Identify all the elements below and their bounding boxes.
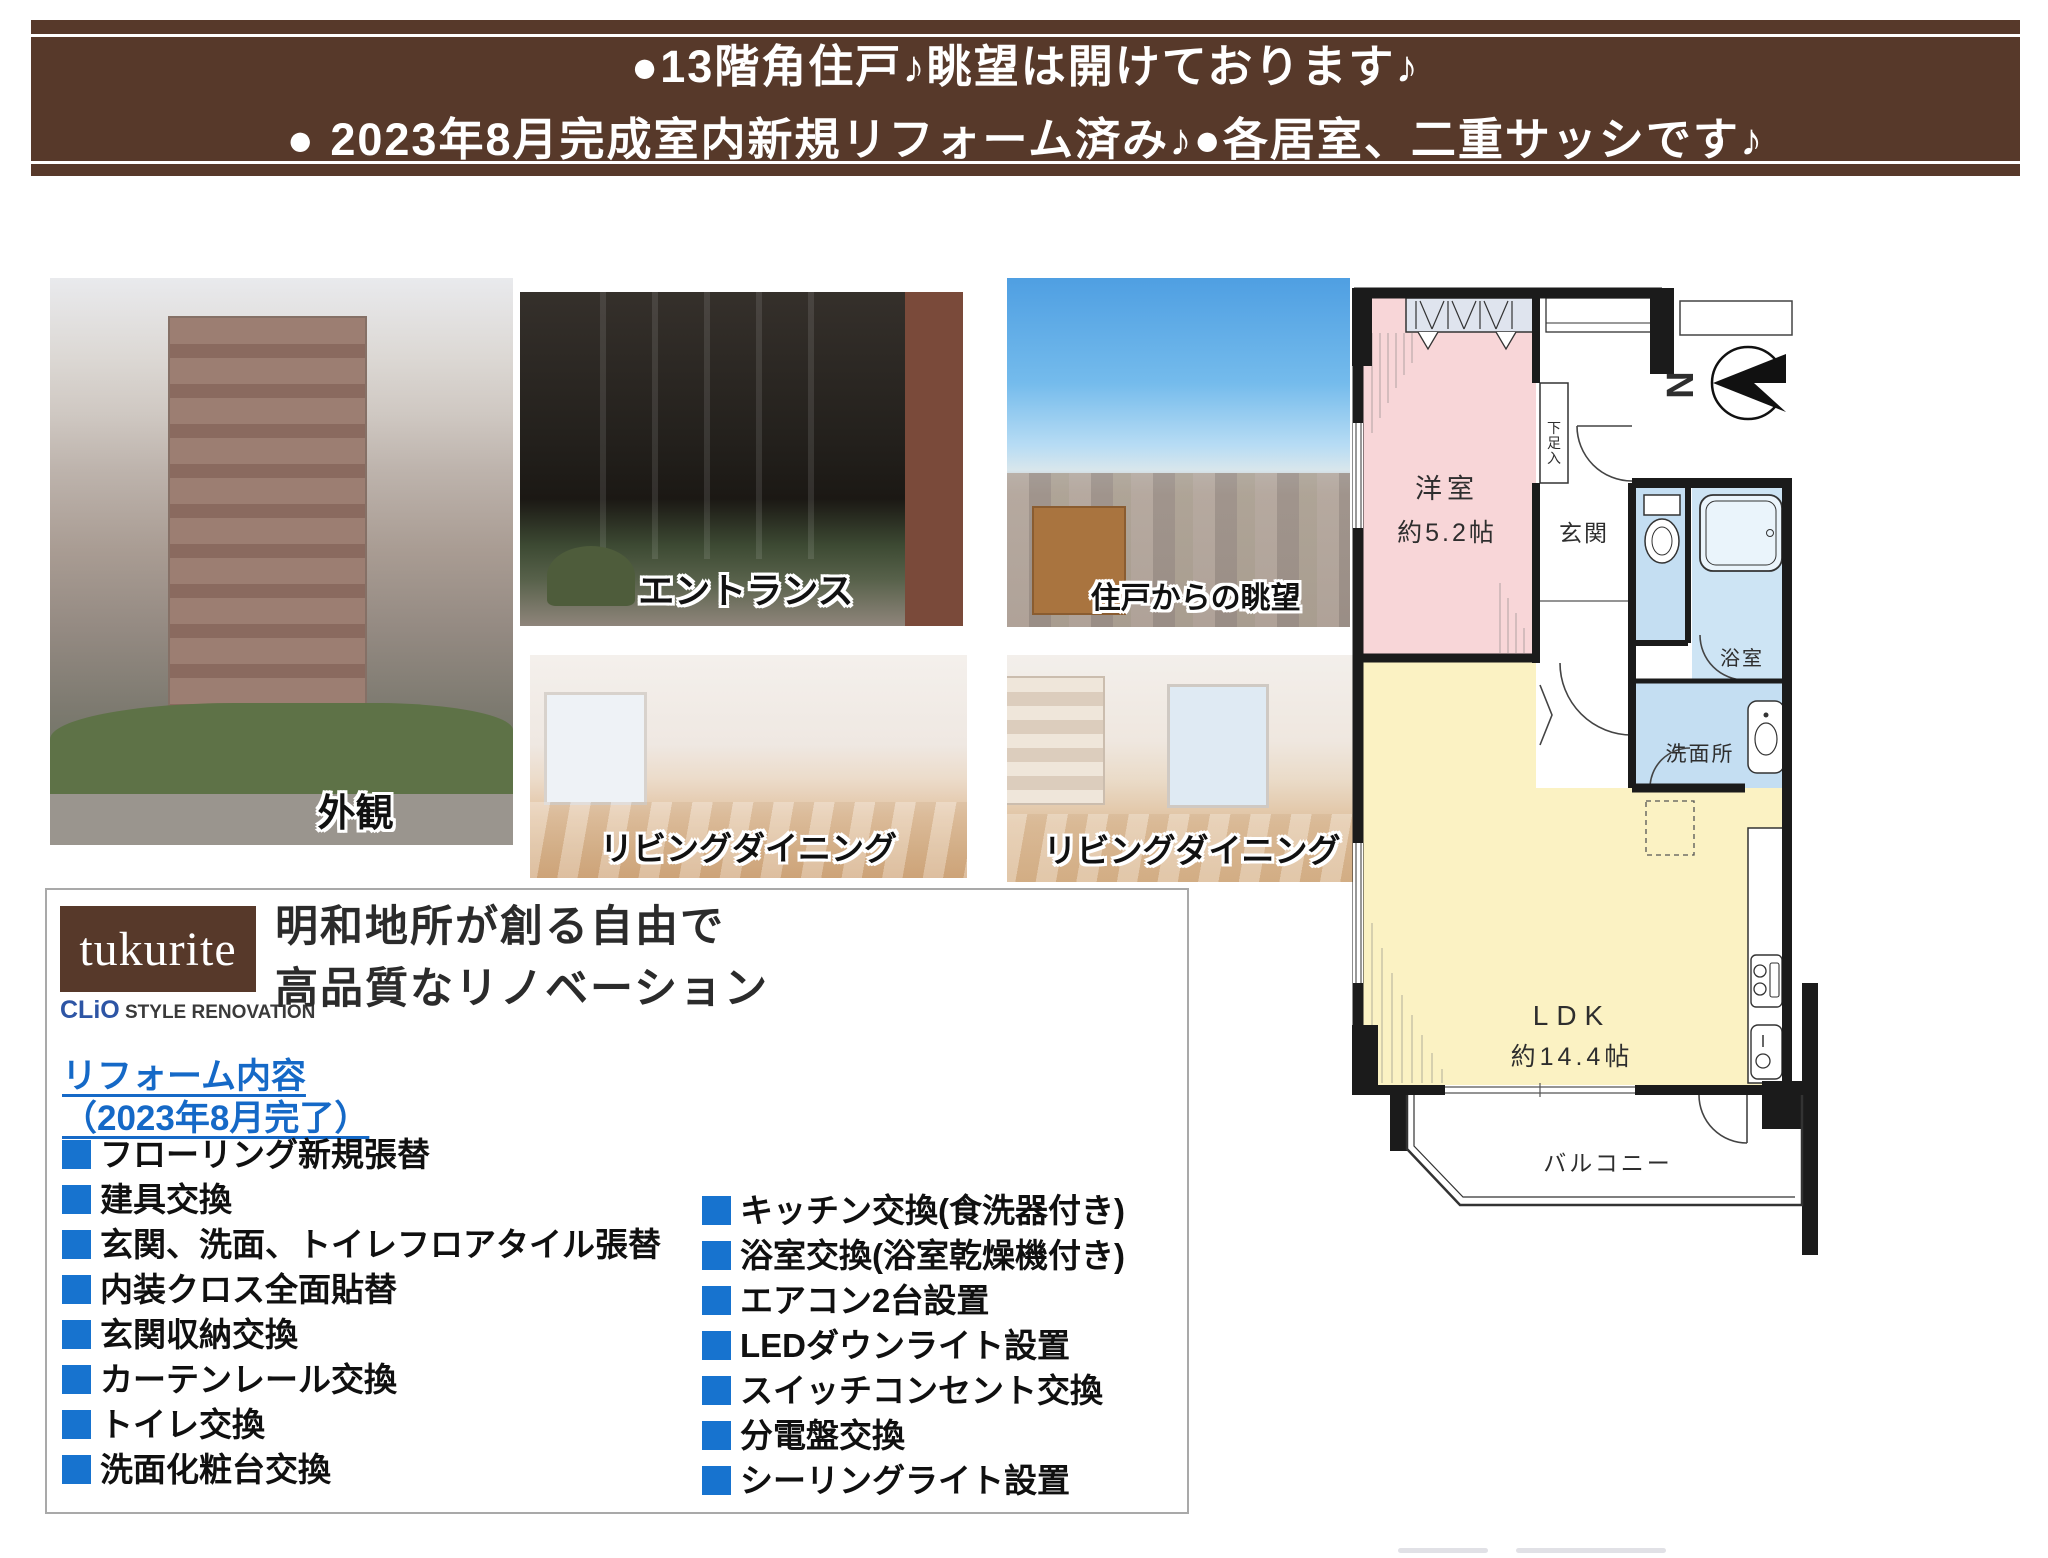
list-item: 玄関、洗面、トイレフロアタイル張替 [62, 1222, 661, 1267]
balcony-door-arc [1699, 1095, 1747, 1143]
kitchen-cabinet-shape [1007, 678, 1103, 803]
brand-heading: 明和地所が創る自由で 高品質なリノベーション [275, 896, 769, 1020]
list-item: シーリングライト設置 [702, 1458, 1125, 1503]
reform-item-text: フローリング新規張替 [100, 1136, 430, 1173]
upper-storage [1546, 298, 1658, 332]
blue-square-icon [702, 1241, 731, 1270]
reform-item-text: 内装クロス全面貼替 [100, 1271, 397, 1308]
header-banner-inner: ●13階角住戸♪眺望は開けております♪ ● 2023年8月完成室内新規リフォーム… [31, 34, 2020, 164]
ldk-size-label: 約14.4帖 [1511, 1043, 1634, 1071]
brick-pillar-shape [905, 292, 963, 626]
header-line-2: ● 2023年8月完成室内新規リフォーム済み♪●各居室、二重サッシです♪ [287, 103, 1765, 168]
reform-item-text: 分電盤交換 [740, 1417, 905, 1454]
blue-square-icon [62, 1410, 91, 1439]
entrance-label: 玄関 [1559, 520, 1609, 546]
list-item: スイッチコンセント交換 [702, 1368, 1125, 1413]
list-item: カーテンレール交換 [62, 1357, 661, 1402]
clio-style-renovation: CLiO STYLE RENOVATION [60, 996, 256, 1025]
list-item: 建具交換 [62, 1177, 661, 1222]
caption-entrance: エントランス [638, 562, 853, 614]
renovation-info-box: tukurite CLiO STYLE RENOVATION 明和地所が創る自由… [45, 888, 1189, 1514]
hall-lower-fill [1540, 658, 1632, 750]
blue-square-icon [702, 1466, 731, 1495]
brand-heading-line1: 明和地所が創る自由で [275, 896, 769, 958]
planter-shape [547, 546, 636, 606]
list-item: LEDダウンライト設置 [702, 1323, 1125, 1368]
blue-square-icon [62, 1230, 91, 1259]
bedroom-size-label: 約5.2帖 [1397, 519, 1497, 547]
sink-icon [1751, 1025, 1782, 1079]
list-item: トイレ交換 [62, 1402, 661, 1447]
reform-item-text: LEDダウンライト設置 [740, 1327, 1070, 1364]
photo-living-2: リビングダイニング [1007, 655, 1377, 882]
header-line-1: ●13階角住戸♪眺望は開けております♪ [631, 30, 1420, 95]
list-item: 分電盤交換 [702, 1413, 1125, 1458]
caption-living-1: リビングダイニング [600, 822, 897, 870]
building-shape [170, 318, 364, 726]
blue-square-icon [62, 1275, 91, 1304]
reform-list-left: フローリング新規張替 建具交換 玄関、洗面、トイレフロアタイル張替 内装クロス全… [62, 1132, 661, 1492]
cropped-text-artifact [1516, 1548, 1666, 1553]
toilet-icon [1644, 495, 1680, 563]
reform-item-text: 洗面化粧台交換 [100, 1451, 331, 1488]
photo-entrance: エントランス [520, 292, 963, 626]
cropped-text-artifact [1398, 1548, 1488, 1553]
blue-square-icon [702, 1196, 731, 1225]
blue-square-icon [702, 1376, 731, 1405]
balcony-window-shape [1170, 687, 1266, 805]
blue-square-icon [702, 1421, 731, 1450]
caption-view: 住戸からの眺望 [1091, 573, 1301, 617]
reform-list-right: キッチン交換(食洗器付き) 浴室交換(浴室乾燥機付き) エアコン2台設置 LED… [702, 1188, 1125, 1503]
reform-item-text: エアコン2台設置 [740, 1282, 989, 1319]
washroom-label: 洗面所 [1666, 743, 1735, 766]
reform-item-text: 玄関収納交換 [100, 1316, 298, 1353]
tukurite-logo: tukurite [60, 906, 256, 992]
photo-living-1: リビングダイニング [530, 655, 967, 878]
list-item: フローリング新規張替 [62, 1132, 661, 1177]
window-shape [547, 695, 643, 802]
bedroom-label: 洋室 [1415, 474, 1479, 504]
photo-view: 住戸からの眺望 [1007, 278, 1350, 627]
reform-item-text: 浴室交換(浴室乾燥機付き) [740, 1237, 1125, 1274]
clio-text: CLiO [60, 996, 120, 1024]
blue-square-icon [62, 1455, 91, 1484]
greenery-shape [50, 703, 513, 794]
reform-item-text: カーテンレール交換 [100, 1361, 397, 1398]
reform-item-text: キッチン交換(食洗器付き) [740, 1192, 1125, 1229]
list-item: 内装クロス全面貼替 [62, 1267, 661, 1312]
blue-square-icon [62, 1140, 91, 1169]
bath-label: 浴室 [1720, 647, 1764, 670]
caption-living-2: リビングダイニング [1044, 824, 1341, 872]
street-shape [50, 794, 513, 845]
list-item: 玄関収納交換 [62, 1312, 661, 1357]
brand-heading-line2: 高品質なリノベーション [275, 958, 769, 1020]
bathtub-icon [1700, 495, 1782, 571]
reform-item-text: トイレ交換 [100, 1406, 265, 1443]
glass-reflection-shape [600, 292, 844, 559]
list-item: エアコン2台設置 [702, 1278, 1125, 1323]
reform-item-text: シーリングライト設置 [740, 1462, 1070, 1499]
header-banner: ●13階角住戸♪眺望は開けております♪ ● 2023年8月完成室内新規リフォーム… [31, 20, 2020, 176]
blue-square-icon [702, 1286, 731, 1315]
list-item: 浴室交換(浴室乾燥機付き) [702, 1233, 1125, 1278]
basin-icon [1748, 701, 1784, 773]
north-compass-icon: N [1660, 347, 1786, 419]
outer-duct-box [1680, 301, 1792, 335]
list-item: キッチン交換(食洗器付き) [702, 1188, 1125, 1233]
ldk-label: LDK [1533, 1000, 1611, 1031]
blue-square-icon [62, 1365, 91, 1394]
blue-square-icon [62, 1320, 91, 1349]
photo-exterior: 外観 [50, 278, 513, 845]
blue-square-icon [62, 1185, 91, 1214]
floor-plan: N 洋室 約5.2帖 下足入 玄関 浴室 洗面所 LDK 約14.4帖 バルコニ… [1350, 283, 1820, 1263]
north-label: N [1660, 371, 1702, 398]
list-item: 洗面化粧台交換 [62, 1447, 661, 1492]
balcony-label: バルコニー [1543, 1150, 1673, 1176]
reform-item-text: スイッチコンセント交換 [740, 1372, 1103, 1409]
reform-item-text: 建具交換 [100, 1181, 232, 1218]
shoe-cabinet-label: 下足入 [1546, 421, 1562, 466]
caption-exterior: 外観 [318, 782, 394, 837]
reform-item-text: 玄関、洗面、トイレフロアタイル張替 [100, 1226, 661, 1263]
stove-icon [1751, 955, 1782, 1007]
blue-square-icon [702, 1331, 731, 1360]
tukurite-logo-text: tukurite [79, 922, 236, 977]
kitchen-counter [1748, 828, 1785, 1083]
